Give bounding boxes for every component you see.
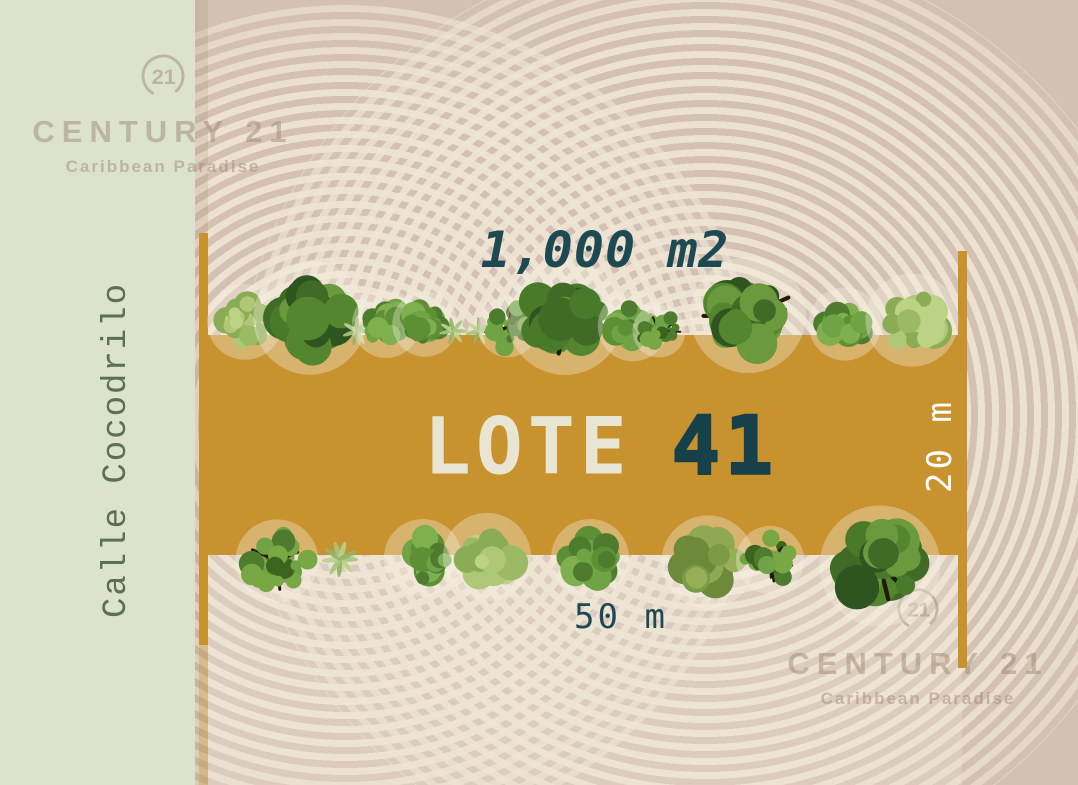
lot-plan-stage: 21 CENTURY 21 Caribbean Paradise 21 CENT… (0, 0, 1078, 785)
boundary-line-left (199, 233, 208, 645)
street-strip (0, 0, 195, 785)
parcel (207, 335, 962, 555)
boundary-line-left-fade (199, 645, 208, 785)
area-label: 1,000 m2 (481, 221, 730, 279)
boundary-line-right (958, 251, 967, 668)
below-lot-shade (208, 555, 962, 785)
